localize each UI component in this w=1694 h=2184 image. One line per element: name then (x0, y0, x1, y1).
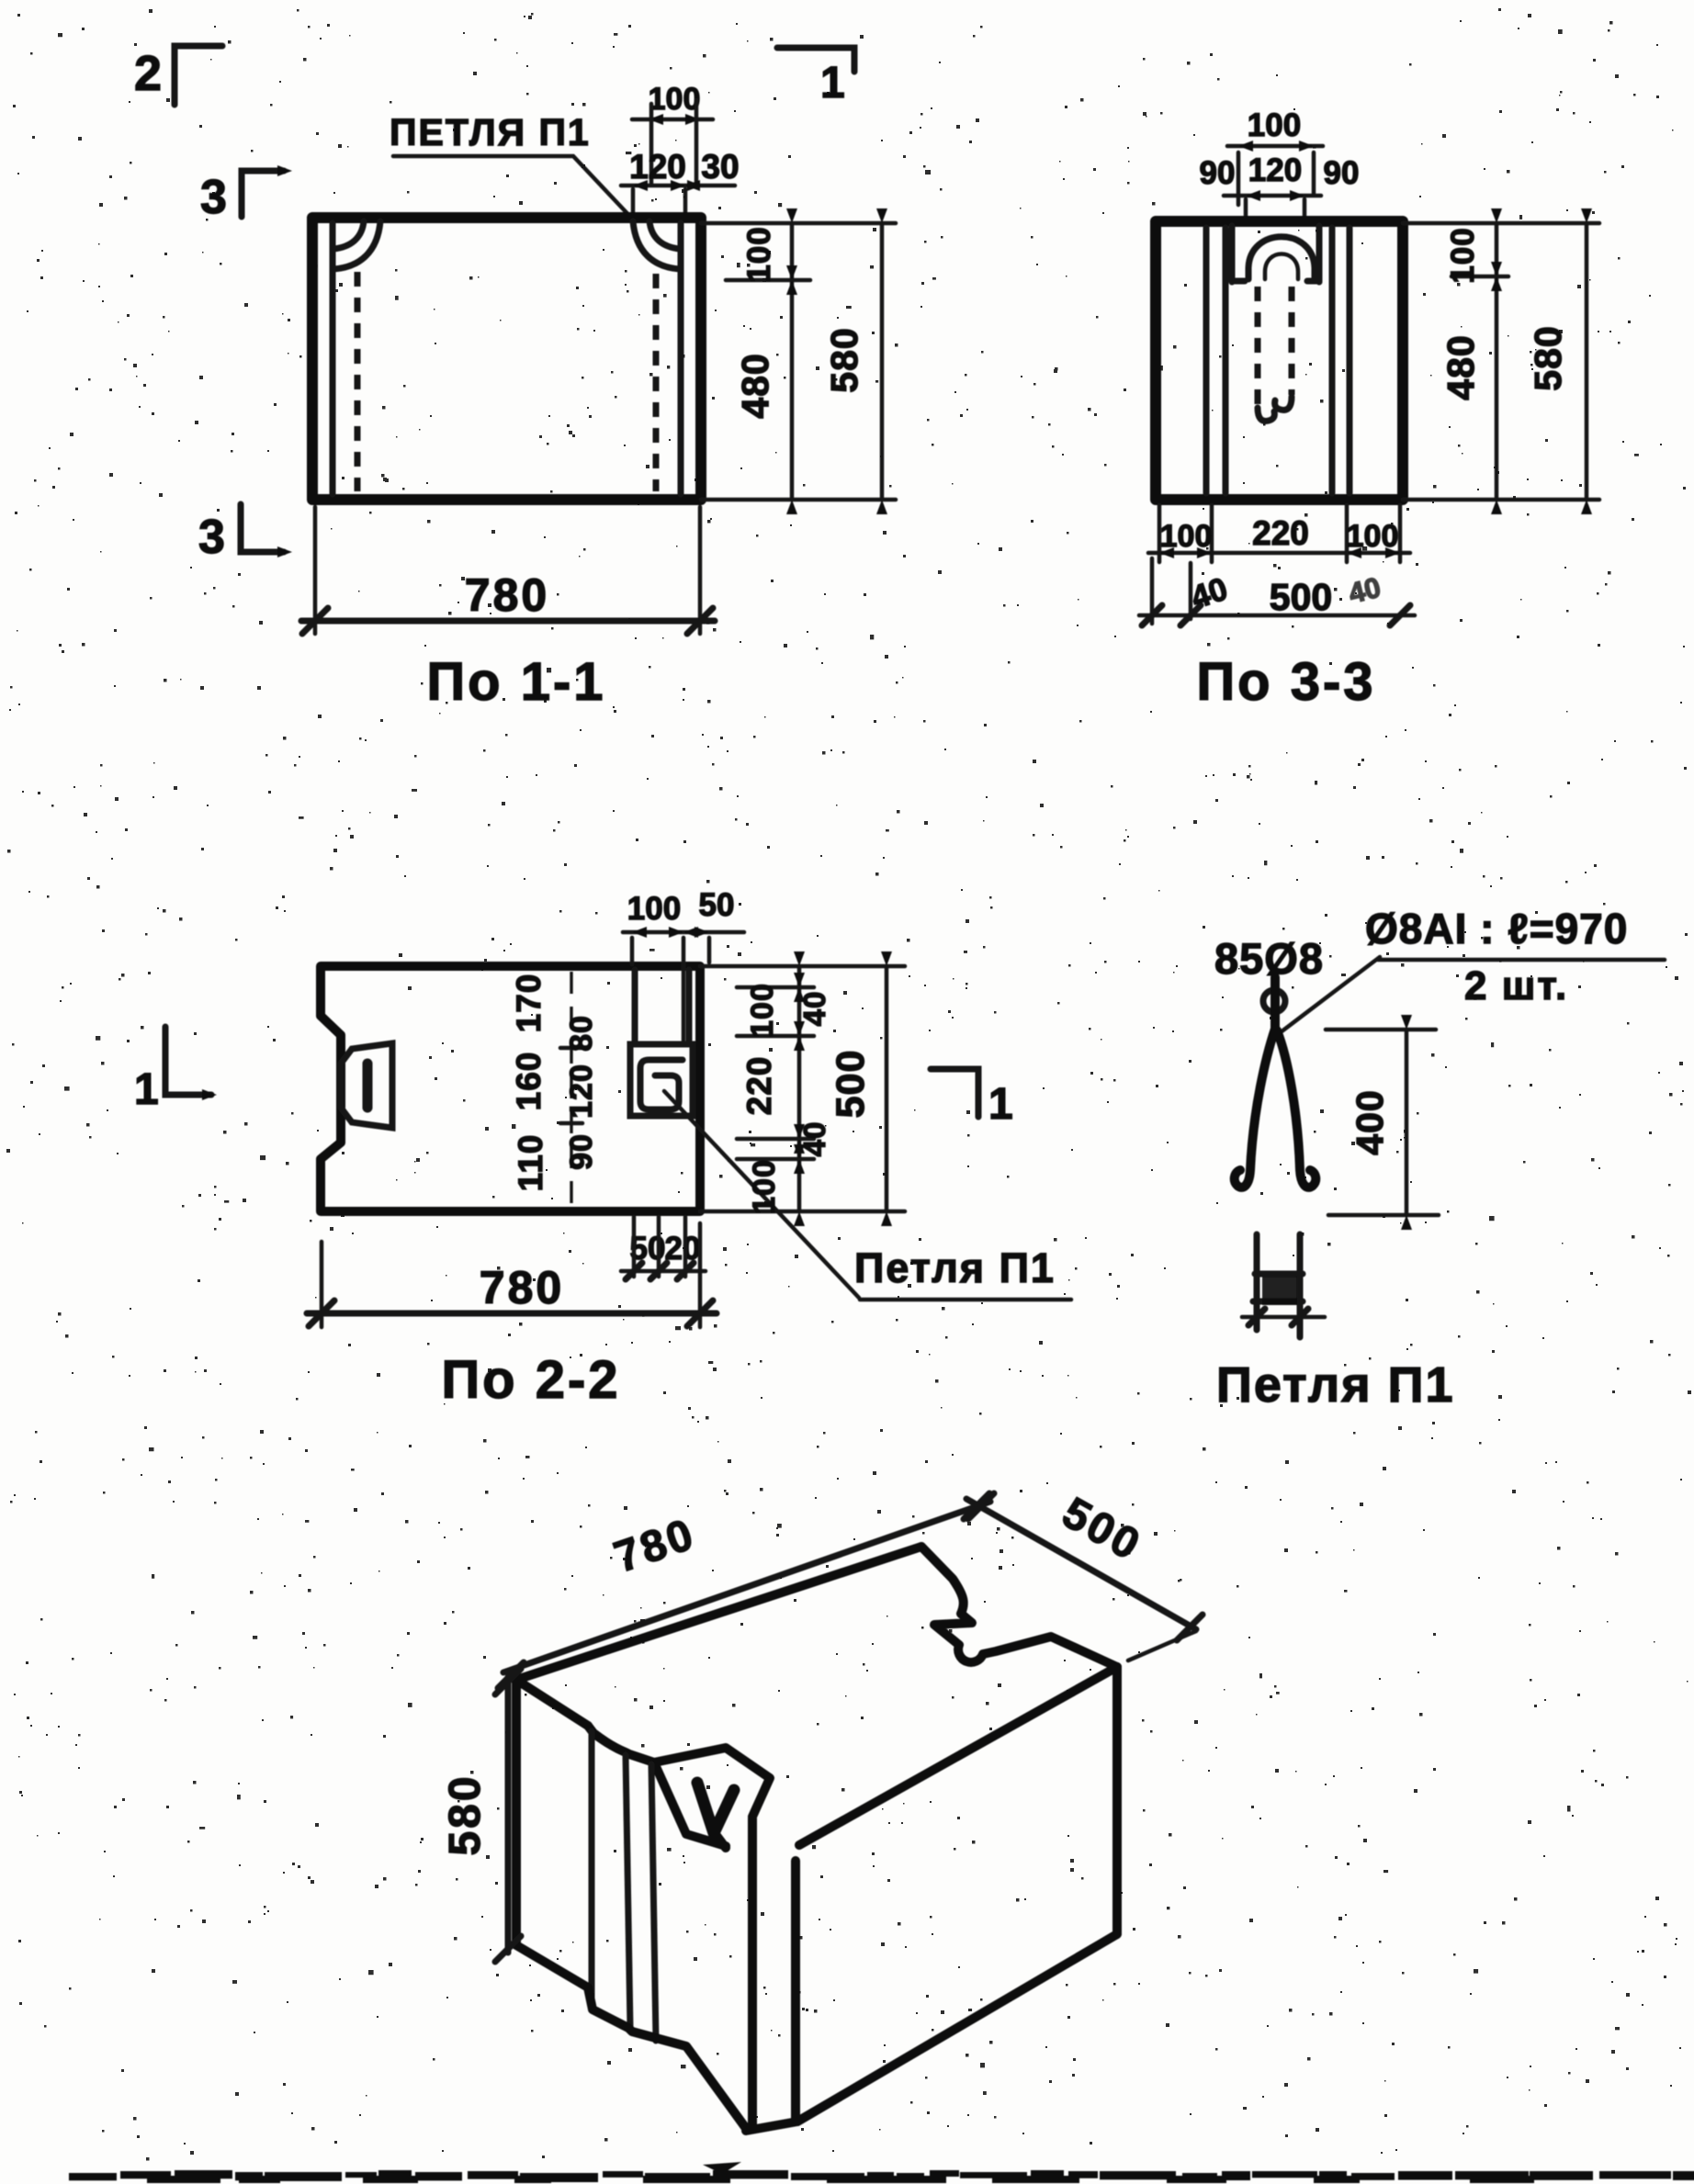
svg-text:2 шт.: 2 шт. (1464, 963, 1568, 1008)
svg-text:100: 100 (1445, 227, 1481, 283)
svg-text:100: 100 (745, 983, 780, 1038)
svg-text:30: 30 (701, 148, 739, 186)
svg-text:40: 40 (797, 1121, 831, 1157)
svg-text:100: 100 (1347, 519, 1399, 554)
svg-text:50: 50 (699, 887, 735, 923)
svg-text:Ø8АI : ℓ=970: Ø8АI : ℓ=970 (1365, 905, 1628, 952)
svg-text:ПЕТЛЯ П1: ПЕТЛЯ П1 (390, 111, 591, 153)
svg-text:100: 100 (1248, 107, 1301, 143)
svg-text:40: 40 (797, 991, 831, 1027)
svg-text:По 2-2: По 2-2 (441, 1350, 620, 1410)
svg-text:170: 170 (510, 974, 548, 1033)
svg-text:1: 1 (988, 1080, 1013, 1129)
svg-text:90: 90 (1324, 155, 1360, 191)
svg-text:500: 500 (1270, 576, 1332, 618)
svg-text:780: 780 (465, 569, 549, 621)
svg-text:1: 1 (134, 1065, 159, 1114)
svg-text:160: 160 (510, 1052, 548, 1111)
svg-text:120: 120 (629, 148, 686, 186)
svg-text:80: 80 (564, 1015, 599, 1052)
svg-text:480: 480 (1440, 334, 1482, 400)
svg-text:100: 100 (741, 226, 777, 282)
svg-text:120: 120 (564, 1064, 599, 1119)
svg-text:110: 110 (512, 1134, 549, 1192)
svg-text:85Ø8: 85Ø8 (1214, 934, 1324, 983)
svg-text:100: 100 (649, 82, 701, 117)
svg-text:500: 500 (829, 1050, 873, 1119)
svg-text:580: 580 (441, 1773, 490, 1855)
svg-text:3: 3 (200, 171, 227, 224)
svg-text:Петля П1: Петля П1 (854, 1244, 1056, 1291)
svg-text:1: 1 (820, 59, 845, 107)
svg-text:220: 220 (740, 1056, 778, 1116)
svg-text:400: 400 (1349, 1089, 1391, 1154)
svg-text:780: 780 (480, 1262, 564, 1313)
svg-text:580: 580 (1527, 325, 1569, 390)
svg-text:3: 3 (198, 511, 225, 564)
svg-text:Петля П1: Петля П1 (1216, 1357, 1455, 1413)
svg-text:90: 90 (564, 1133, 599, 1170)
svg-text:120: 120 (1248, 152, 1302, 188)
svg-text:2: 2 (134, 46, 162, 101)
svg-text:По 3-3: По 3-3 (1196, 652, 1375, 712)
svg-text:По 1-1: По 1-1 (426, 652, 605, 712)
svg-text:100: 100 (747, 1159, 782, 1214)
svg-text:220: 220 (1252, 514, 1309, 552)
svg-text:90: 90 (1200, 155, 1236, 191)
svg-text:580: 580 (823, 327, 865, 392)
svg-text:480: 480 (734, 353, 776, 418)
svg-text:100: 100 (627, 891, 681, 927)
svg-text:100: 100 (1160, 519, 1213, 554)
